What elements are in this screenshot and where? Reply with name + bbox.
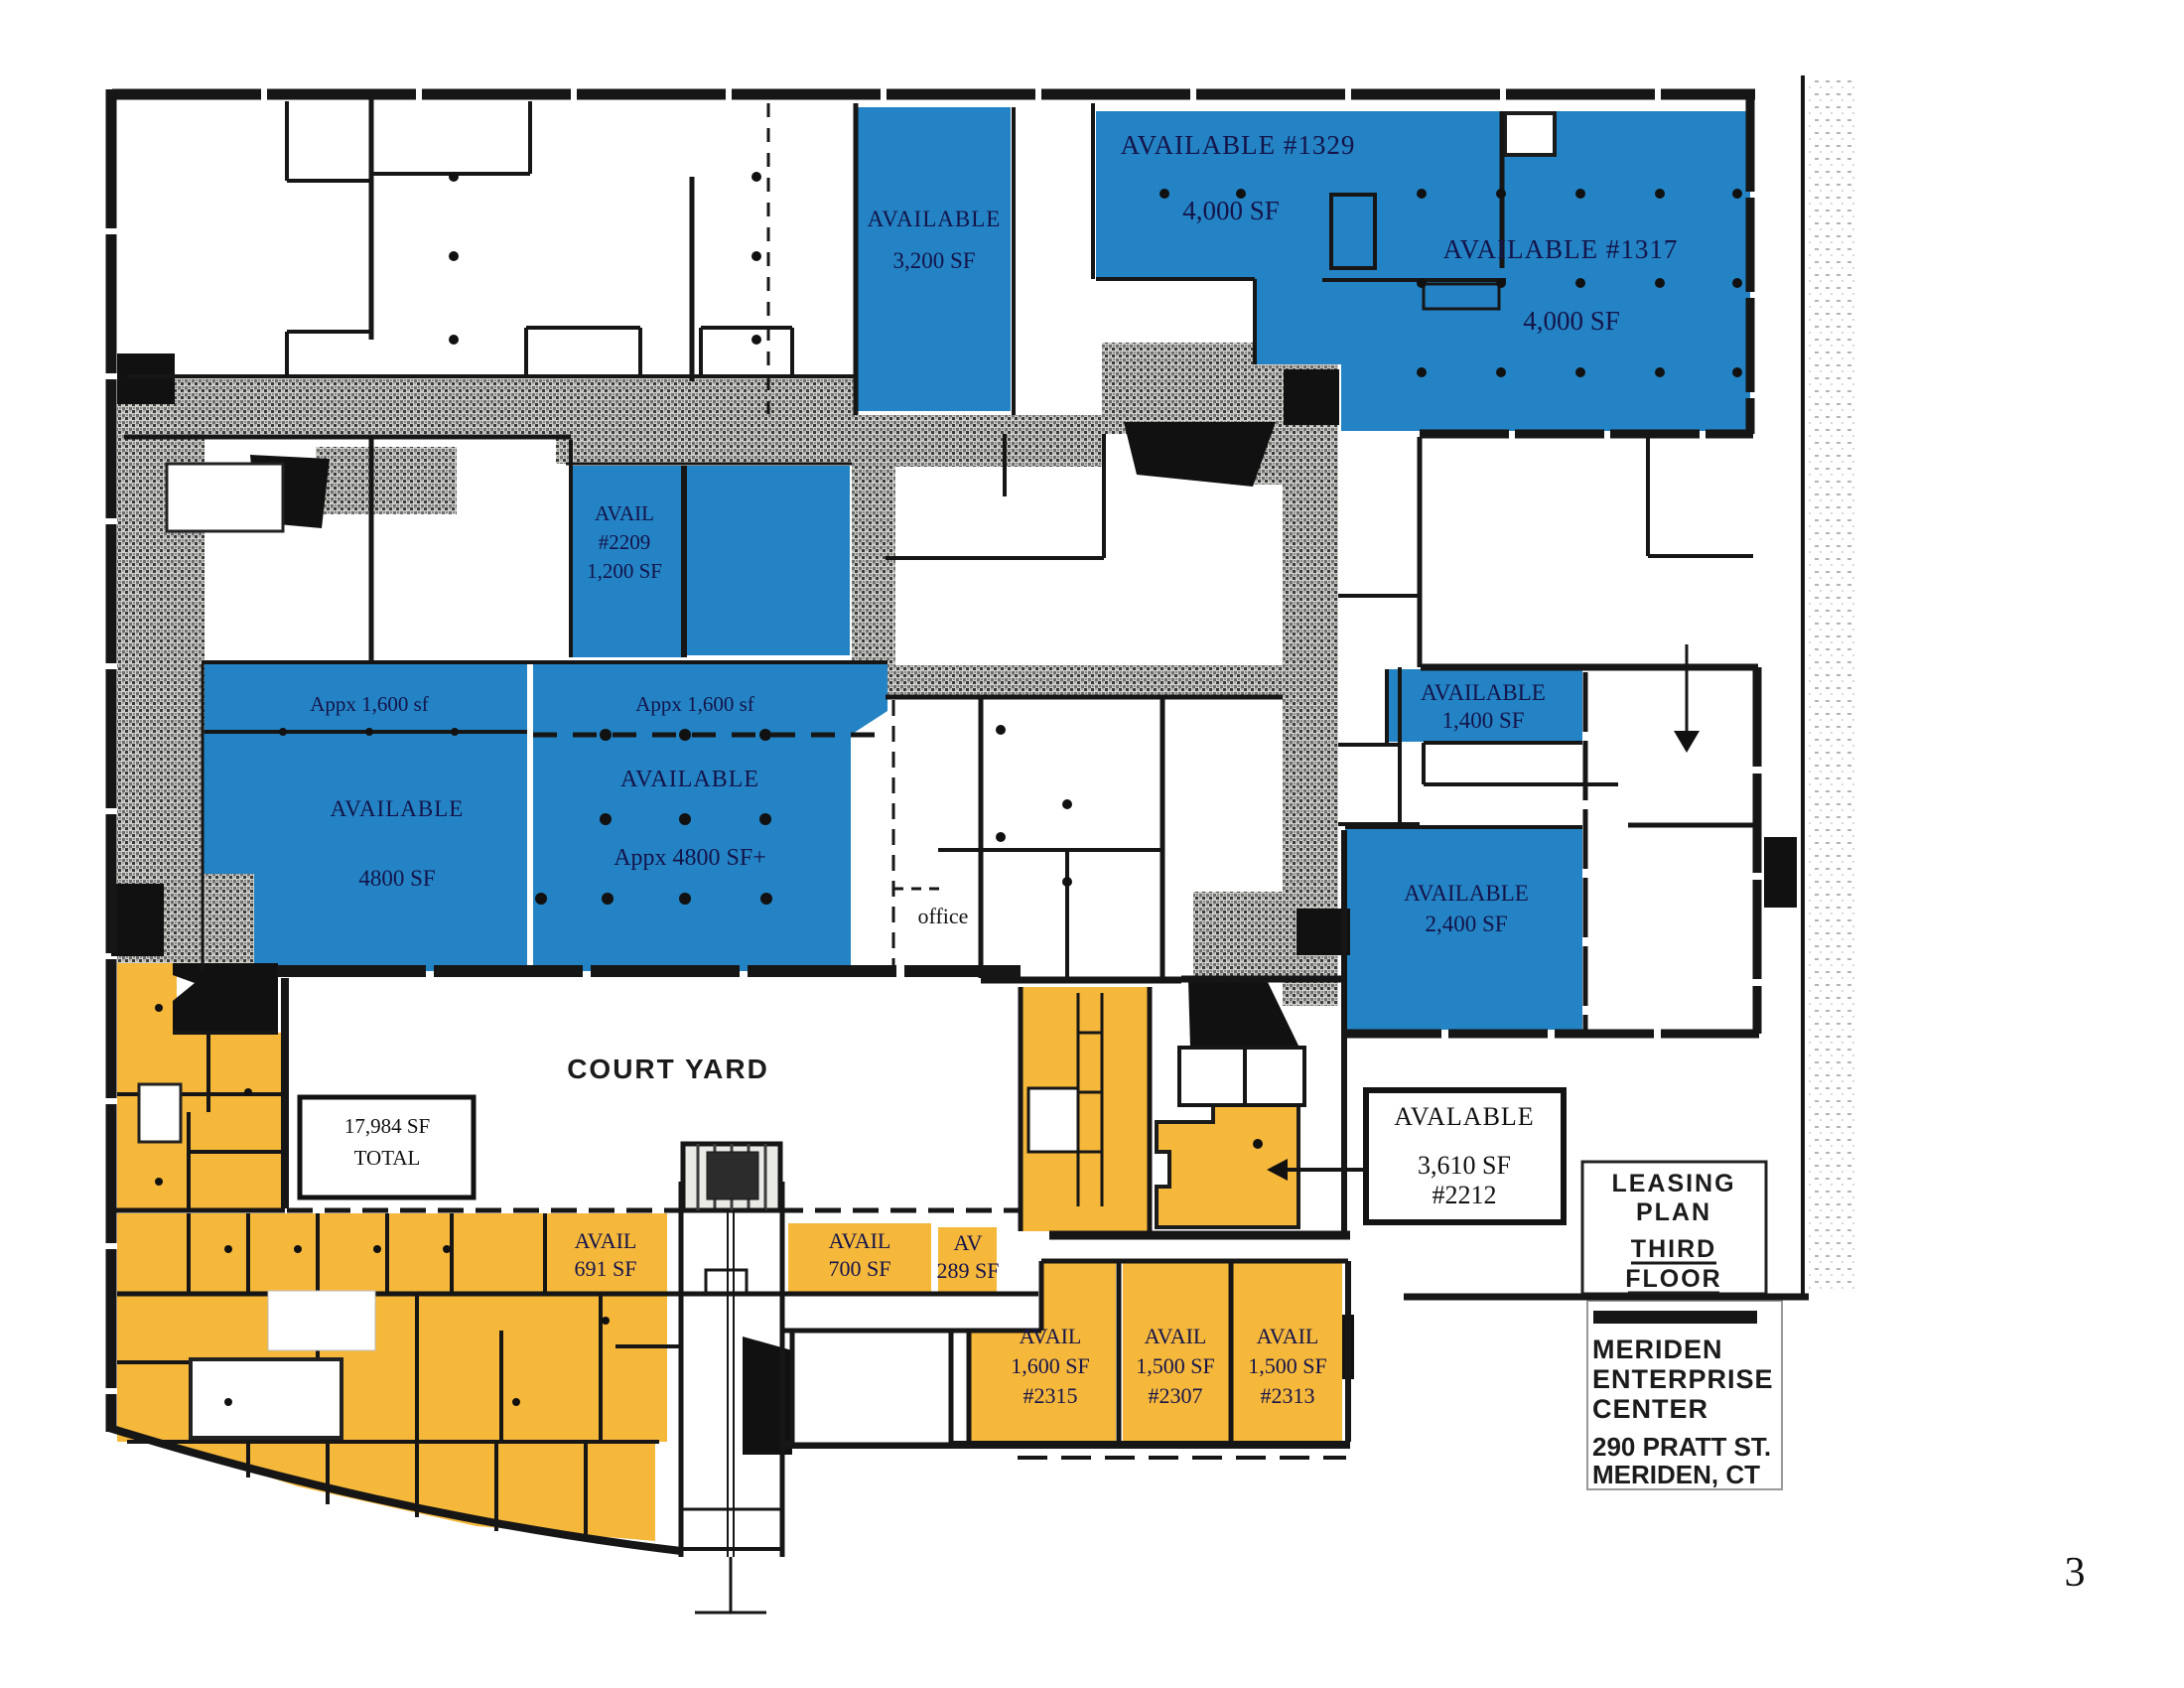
svg-text:1,500 SF: 1,500 SF <box>1248 1353 1326 1378</box>
svg-text:290 PRATT ST.: 290 PRATT ST. <box>1592 1432 1771 1462</box>
svg-text:Appx 1,600 sf: Appx 1,600 sf <box>635 692 754 716</box>
svg-text:office: office <box>918 904 969 928</box>
svg-text:4,000 SF: 4,000 SF <box>1523 306 1620 336</box>
svg-text:CENTER: CENTER <box>1592 1394 1708 1424</box>
svg-text:AV: AV <box>954 1230 983 1255</box>
svg-text:1,500 SF: 1,500 SF <box>1136 1353 1214 1378</box>
svg-text:Appx 4800 SF+: Appx 4800 SF+ <box>614 845 766 871</box>
svg-text:AVAIL: AVAIL <box>595 501 654 525</box>
svg-text:3: 3 <box>2065 1550 2086 1596</box>
svg-text:AVAIL: AVAIL <box>829 1228 891 1253</box>
svg-text:1,200 SF: 1,200 SF <box>587 559 662 583</box>
svg-text:3,610 SF: 3,610 SF <box>1418 1151 1511 1180</box>
svg-text:#2307: #2307 <box>1149 1383 1203 1408</box>
svg-text:LEASING: LEASING <box>1611 1170 1735 1197</box>
svg-text:700 SF: 700 SF <box>829 1256 891 1281</box>
svg-text:MERIDEN, CT: MERIDEN, CT <box>1592 1460 1760 1489</box>
svg-text:TOTAL: TOTAL <box>354 1146 421 1170</box>
svg-text:2,400 SF: 2,400 SF <box>1425 912 1507 936</box>
svg-text:AVAILABLE: AVAILABLE <box>868 207 1002 231</box>
svg-text:AVAIL: AVAIL <box>1145 1324 1207 1348</box>
svg-text:#2315: #2315 <box>1024 1383 1078 1408</box>
svg-text:AVAILABLE: AVAILABLE <box>1404 881 1529 906</box>
svg-text:4,000 SF: 4,000 SF <box>1182 196 1280 225</box>
svg-text:AVAILABLE: AVAILABLE <box>331 796 465 821</box>
svg-text:289 SF: 289 SF <box>937 1258 1000 1283</box>
svg-text:1,400 SF: 1,400 SF <box>1441 708 1524 733</box>
svg-text:AVAILABLE: AVAILABLE <box>1421 680 1546 705</box>
svg-text:THIRD: THIRD <box>1631 1235 1716 1263</box>
svg-text:MERIDEN: MERIDEN <box>1592 1335 1723 1364</box>
svg-text:FLOOR: FLOOR <box>1625 1265 1722 1293</box>
svg-text:3,200 SF: 3,200 SF <box>892 248 975 273</box>
svg-text:COURT YARD: COURT YARD <box>567 1054 769 1084</box>
svg-text:AVALABLE: AVALABLE <box>1394 1102 1534 1131</box>
svg-text:Appx 1,600 sf: Appx 1,600 sf <box>310 692 429 716</box>
svg-text:AVAILABLE #1329: AVAILABLE #1329 <box>1121 130 1356 160</box>
svg-text:#2209: #2209 <box>599 530 651 554</box>
svg-text:17,984 SF: 17,984 SF <box>344 1114 430 1138</box>
svg-text:4800 SF: 4800 SF <box>358 866 435 891</box>
svg-text:AVAILABLE: AVAILABLE <box>620 767 759 792</box>
svg-text:AVAIL: AVAIL <box>1020 1324 1082 1348</box>
svg-text:1,600 SF: 1,600 SF <box>1011 1353 1089 1378</box>
svg-text:PLAN: PLAN <box>1636 1198 1711 1226</box>
svg-text:AVAIL: AVAIL <box>575 1228 637 1253</box>
svg-text:AVAIL: AVAIL <box>1257 1324 1319 1348</box>
svg-text:#2313: #2313 <box>1261 1383 1315 1408</box>
svg-text:ENTERPRISE: ENTERPRISE <box>1592 1364 1774 1394</box>
svg-text:AVAILABLE #1317: AVAILABLE #1317 <box>1443 234 1679 264</box>
svg-text:691 SF: 691 SF <box>575 1256 637 1281</box>
svg-text:#2212: #2212 <box>1433 1181 1497 1209</box>
